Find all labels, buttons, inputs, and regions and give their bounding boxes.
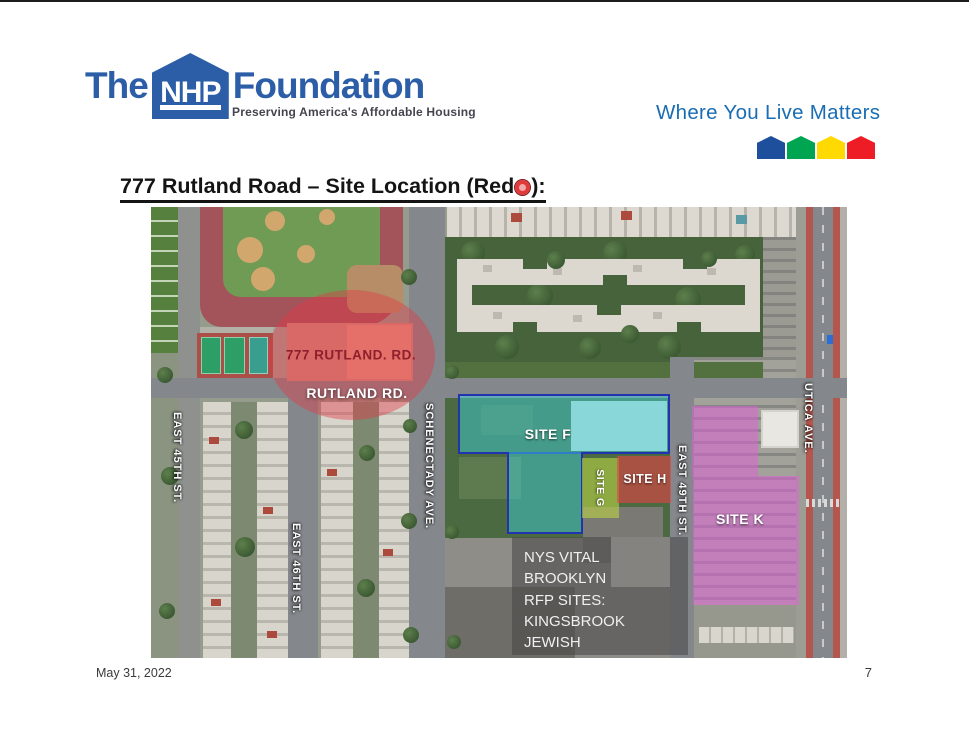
rfp-sites-info-box: NYS VITAL BROOKLYN RFP SITES: KINGSBROOK… — [512, 537, 688, 655]
logo-house-icon: NHP — [152, 53, 229, 119]
logo-tagline: Preserving America's Affordable Housing — [232, 105, 476, 119]
red-roof — [211, 599, 221, 606]
red-roof — [511, 213, 522, 222]
sidewalk — [840, 207, 847, 658]
slide: The NHP Foundation Preserving America's … — [0, 0, 969, 749]
house-icon-red — [847, 136, 875, 159]
football-field — [151, 207, 178, 353]
backyards — [353, 402, 379, 658]
tree — [357, 579, 375, 597]
red-roof — [267, 631, 277, 638]
brand-house-icons — [757, 136, 875, 159]
site-g-label: SITE G — [594, 469, 606, 506]
rooftop-unit — [573, 315, 582, 322]
warehouse-row — [699, 627, 794, 643]
site-k-label: SITE K — [716, 511, 764, 527]
street-label-east-45th: EAST 45TH ST. — [171, 412, 183, 503]
street-label-schenectady: SCHENECTADY AVE. — [423, 403, 435, 529]
tree — [447, 635, 461, 649]
house-icon-yellow — [817, 136, 845, 159]
lane-markings — [822, 207, 824, 658]
tree — [495, 335, 519, 359]
house-icon-green — [787, 136, 815, 159]
red-roof — [621, 211, 632, 220]
tree — [547, 251, 565, 269]
rutland-road-label: RUTLAND RD. — [306, 385, 407, 401]
tree — [159, 603, 175, 619]
nhp-logo: The NHP Foundation Preserving America's … — [85, 53, 425, 127]
title-prefix: 777 Rutland Road – Site Location (Red — [120, 174, 514, 198]
tree-canopy — [445, 362, 763, 378]
logo-house-underline — [160, 105, 221, 110]
site-k-overlay-lower — [693, 476, 799, 605]
baseball-diamond — [265, 211, 285, 231]
tree — [235, 537, 255, 557]
info-line: NYS VITAL BROOKLYN — [524, 547, 676, 590]
building-notch — [603, 275, 627, 285]
street-label-east-46th: EAST 46TH ST. — [290, 523, 302, 614]
baseball-diamond — [297, 245, 315, 263]
tree — [621, 325, 639, 343]
rowhouse-block — [321, 402, 353, 658]
parking-lot — [763, 237, 796, 377]
info-line: KINGSBROOK JEWISH — [524, 611, 676, 654]
rooftop-unit — [553, 268, 562, 275]
red-roof — [263, 507, 273, 514]
tree — [403, 627, 419, 643]
rooftop-unit — [633, 265, 642, 272]
site-f-label: SITE F — [525, 426, 572, 442]
red-roof — [327, 469, 337, 476]
rutland-building-label: 777 RUTLAND. RD. — [286, 348, 416, 363]
info-line: RFP SITES: — [524, 590, 676, 611]
crosswalk — [806, 499, 840, 507]
tree — [657, 335, 681, 359]
tree — [401, 269, 417, 285]
red-roof — [383, 549, 393, 556]
slide-title: 777 Rutland Road – Site Location (Red): — [120, 174, 546, 203]
house-icon-blue — [757, 136, 785, 159]
rooftop-unit — [653, 312, 662, 319]
site-h-label: SITE H — [623, 472, 666, 486]
street-label-east-49th: EAST 49TH ST. — [676, 445, 688, 536]
rooftop-unit — [707, 268, 716, 275]
transit-marker — [827, 335, 833, 344]
site-f-overlay-extension — [507, 452, 583, 534]
building-notch — [523, 259, 547, 269]
slide-date: May 31, 2022 — [96, 666, 172, 680]
building-notch — [677, 322, 701, 332]
backyards — [231, 402, 257, 658]
tree — [403, 419, 417, 433]
tree — [445, 365, 459, 379]
baseball-diamond — [319, 209, 335, 225]
warehouse-building — [761, 410, 799, 448]
tree — [445, 525, 459, 539]
street-label-utica: UTICA AVE. — [802, 383, 814, 454]
window-top-border — [0, 0, 969, 2]
logo-text-the: The — [85, 53, 148, 119]
red-roof — [209, 437, 219, 444]
rowhouse-block — [379, 402, 409, 658]
title-suffix: ): — [531, 174, 545, 198]
baseball-diamond — [237, 237, 263, 263]
red-circle-icon — [515, 180, 530, 195]
info-line: MEDICAL CENTER — [524, 653, 676, 658]
building-notch — [597, 305, 621, 315]
site-f-overlay — [458, 394, 670, 454]
satellite-map: 777 RUTLAND. RD. RUTLAND RD. NYS VITAL B… — [151, 207, 847, 658]
tree — [401, 513, 417, 529]
bus-lane — [833, 207, 840, 658]
apartment-building — [745, 259, 760, 332]
rowhouse-block — [257, 402, 288, 658]
teal-roof — [736, 215, 747, 224]
tennis-court — [201, 337, 221, 374]
tree — [359, 445, 375, 461]
tree — [157, 367, 173, 383]
motto-text: Where You Live Matters — [656, 101, 880, 125]
tree — [235, 421, 253, 439]
baseball-diamond — [251, 267, 275, 291]
tennis-court — [249, 337, 268, 374]
building-notch — [513, 322, 537, 332]
rooftop-unit — [493, 312, 502, 319]
tree — [579, 337, 601, 359]
tree — [701, 251, 717, 267]
site-k-overlay-upper — [692, 406, 758, 476]
tennis-court — [224, 337, 245, 374]
apartment-building — [457, 259, 472, 332]
rooftop-unit — [483, 265, 492, 272]
page-number: 7 — [852, 665, 872, 680]
